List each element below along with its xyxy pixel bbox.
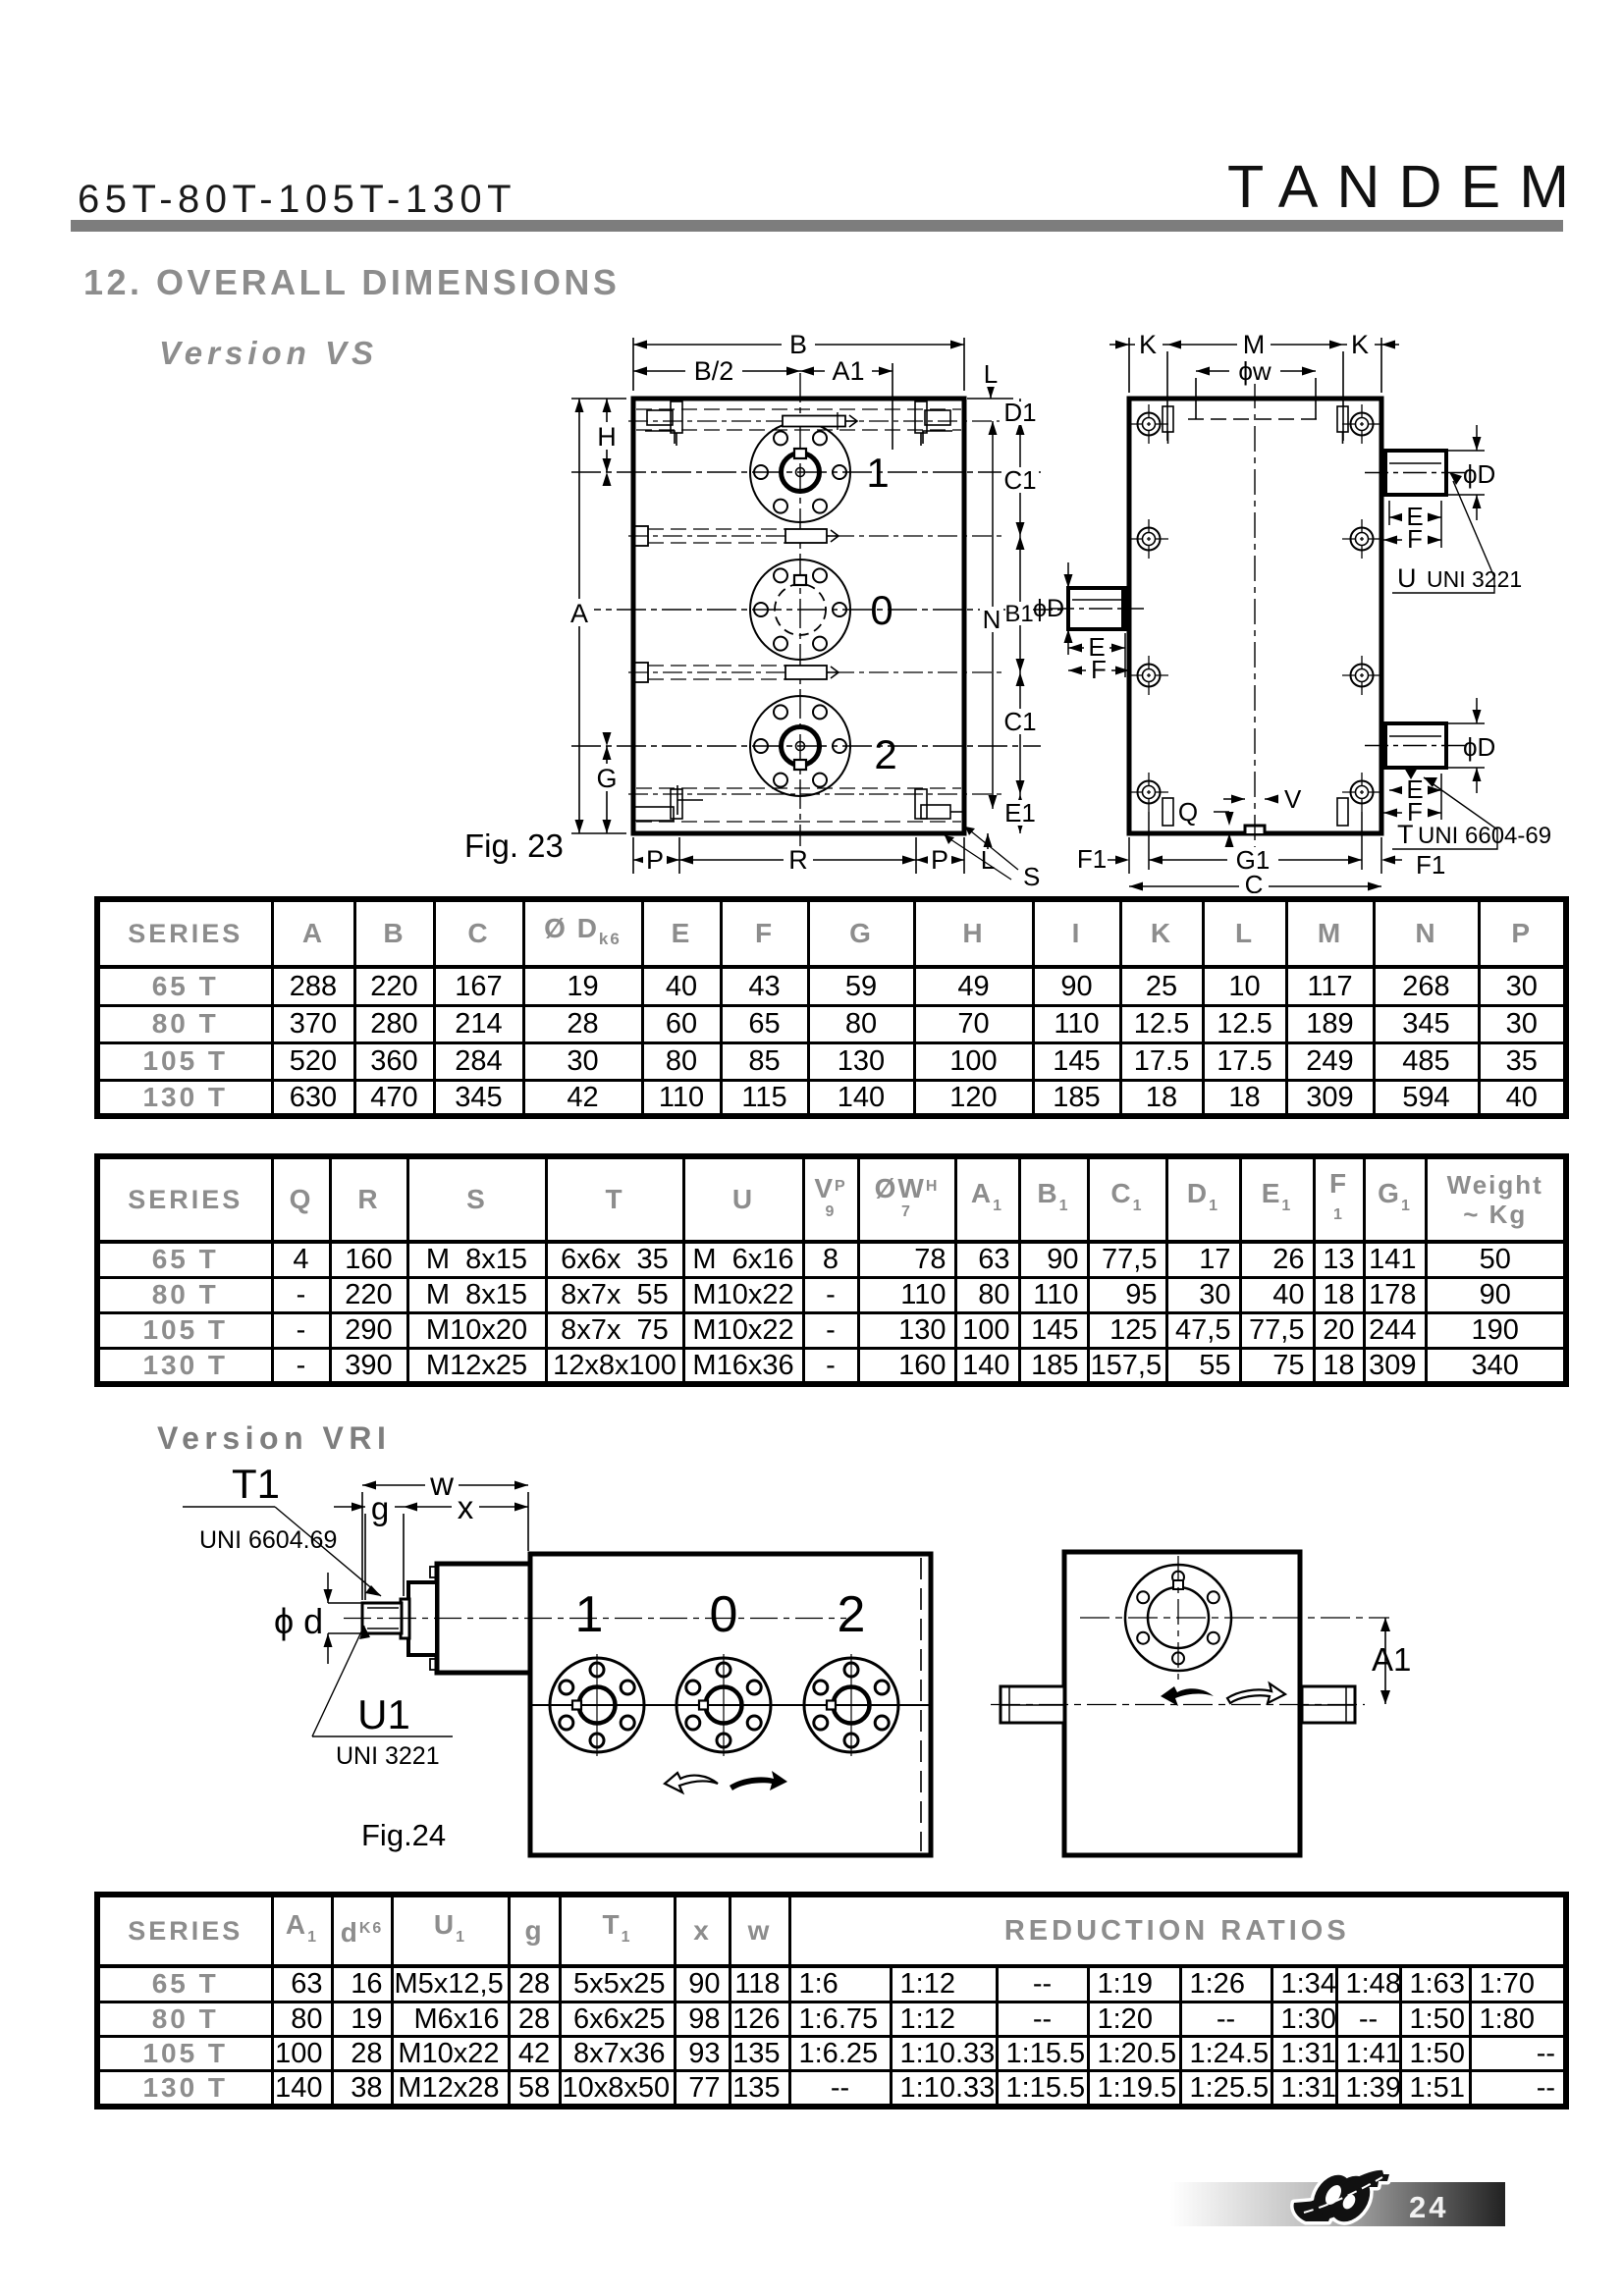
svg-text:ϕD: ϕD	[1033, 595, 1064, 622]
svg-text:C: C	[1245, 870, 1264, 893]
svg-text:F: F	[1091, 655, 1107, 684]
svg-text:Q: Q	[1178, 797, 1198, 827]
svg-text:2: 2	[874, 731, 896, 777]
svg-text:0: 0	[710, 1586, 738, 1643]
svg-text:U: U	[1397, 563, 1417, 593]
svg-text:B/2: B/2	[694, 356, 734, 386]
svg-text:1: 1	[866, 450, 889, 496]
svg-text:ϕw: ϕw	[1238, 356, 1271, 386]
svg-text:S: S	[1023, 862, 1040, 891]
svg-text:C1: C1	[1003, 707, 1036, 736]
svg-text:K: K	[1351, 330, 1369, 359]
svg-text:H: H	[597, 422, 617, 452]
svg-text:g: g	[371, 1490, 389, 1526]
svg-text:A1: A1	[1372, 1641, 1411, 1678]
svg-text:K: K	[1139, 330, 1157, 359]
svg-text:C1: C1	[1003, 465, 1036, 495]
svg-text:F: F	[1407, 524, 1423, 554]
svg-text:F1: F1	[1077, 844, 1107, 874]
svg-text:2: 2	[838, 1586, 866, 1643]
svg-text:M: M	[1243, 330, 1266, 359]
svg-text:1: 1	[575, 1586, 604, 1643]
svg-text:N: N	[983, 605, 1001, 634]
svg-text:0: 0	[870, 587, 893, 633]
svg-text:w: w	[429, 1466, 454, 1502]
svg-text:V: V	[1284, 784, 1302, 814]
svg-text:UNI 6604-69: UNI 6604-69	[1418, 823, 1551, 849]
svg-text:UNI 6604.69: UNI 6604.69	[199, 1526, 337, 1554]
svg-text:F1: F1	[1416, 850, 1445, 880]
svg-text:Fig. 23: Fig. 23	[464, 828, 564, 864]
svg-text:UNI 3221: UNI 3221	[336, 1742, 440, 1770]
svg-text:E1: E1	[1004, 798, 1036, 828]
svg-text:ϕD: ϕD	[1463, 459, 1495, 489]
svg-text:T: T	[1397, 820, 1414, 849]
svg-text:U1: U1	[357, 1691, 410, 1737]
svg-text:Fig.24: Fig.24	[361, 1818, 446, 1852]
svg-text:x: x	[458, 1489, 474, 1525]
svg-text:P: P	[646, 845, 664, 875]
svg-text:P: P	[931, 845, 948, 875]
svg-text:B: B	[789, 330, 807, 359]
svg-text:A1: A1	[832, 356, 864, 386]
svg-text:A: A	[570, 599, 588, 628]
svg-text:ϕD: ϕD	[1463, 732, 1495, 762]
svg-text:G: G	[596, 764, 617, 793]
svg-text:ϕ d: ϕ d	[274, 1601, 323, 1641]
svg-text:UNI 3221: UNI 3221	[1427, 566, 1522, 592]
svg-text:L: L	[984, 359, 998, 389]
svg-text:D1: D1	[1003, 398, 1036, 427]
svg-text:R: R	[788, 845, 808, 875]
svg-text:T1: T1	[232, 1463, 280, 1507]
svg-text:B1: B1	[1004, 601, 1033, 627]
